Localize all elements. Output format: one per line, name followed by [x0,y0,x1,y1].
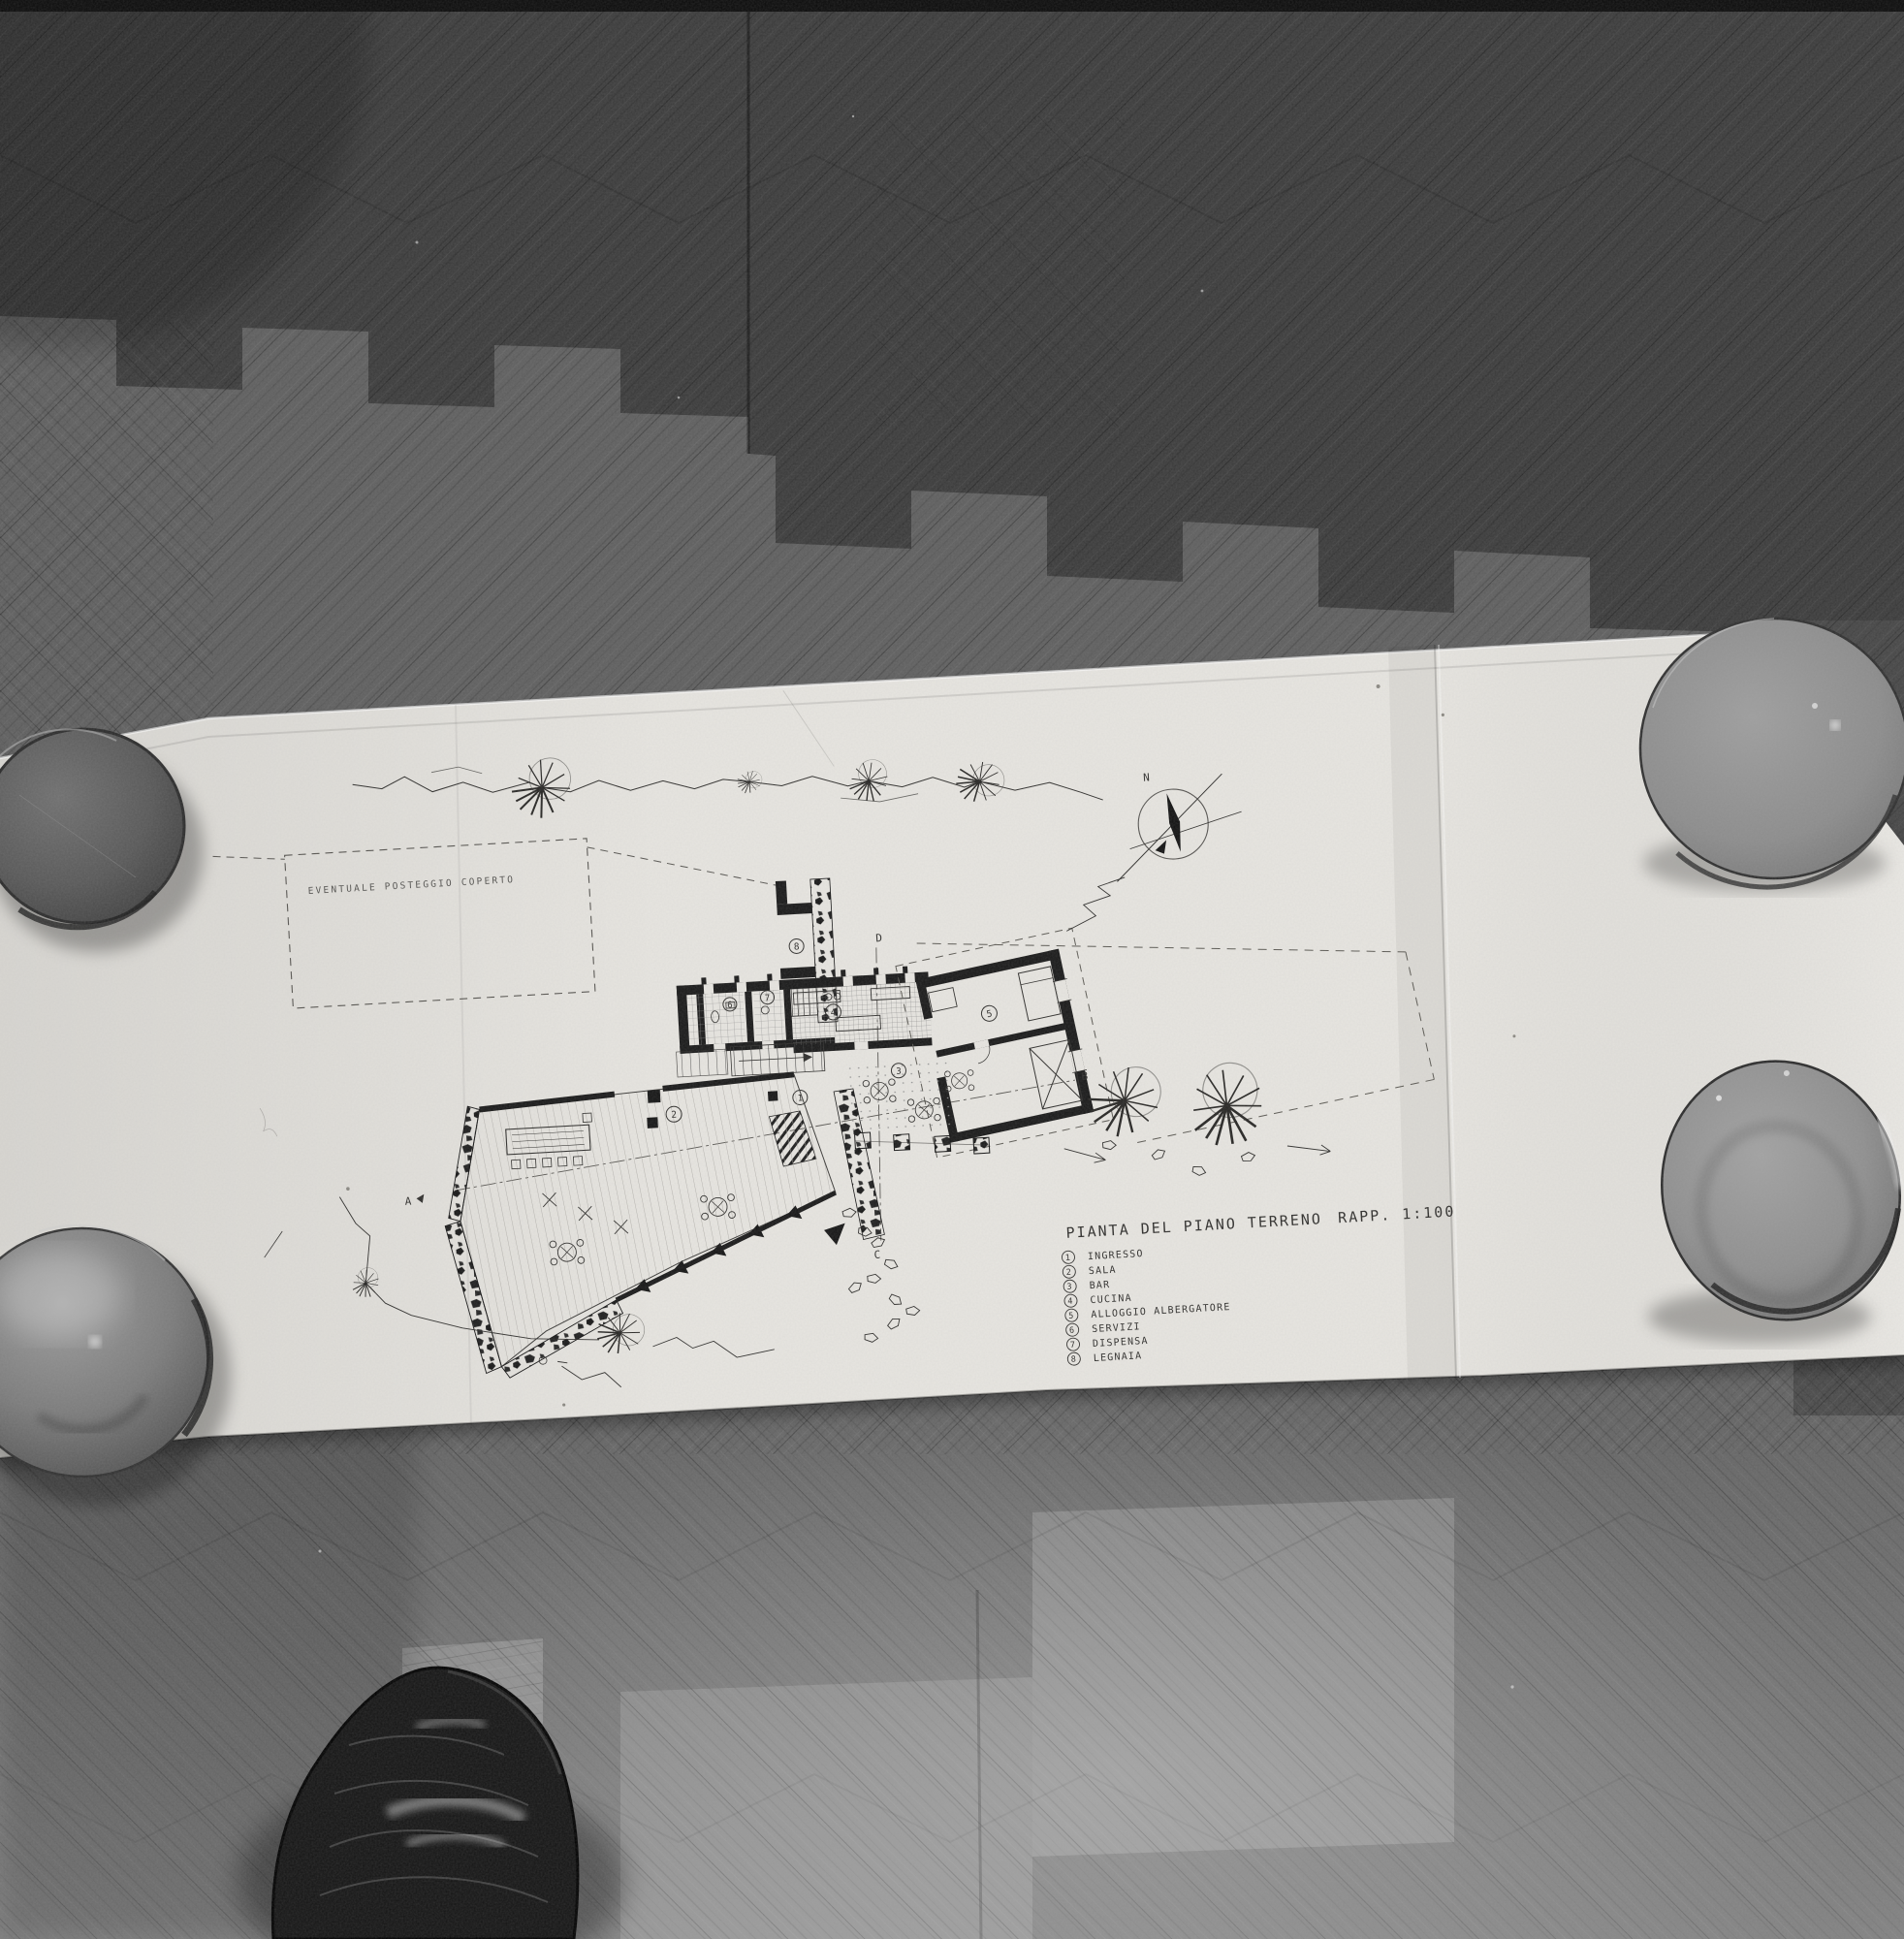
photograph: EVENTUALE POSTEGGIO COPERTO 8 [0,0,1904,1939]
photo-scene: EVENTUALE POSTEGGIO COPERTO 8 [0,0,1904,1939]
film-grain-overlay [0,0,1904,1939]
